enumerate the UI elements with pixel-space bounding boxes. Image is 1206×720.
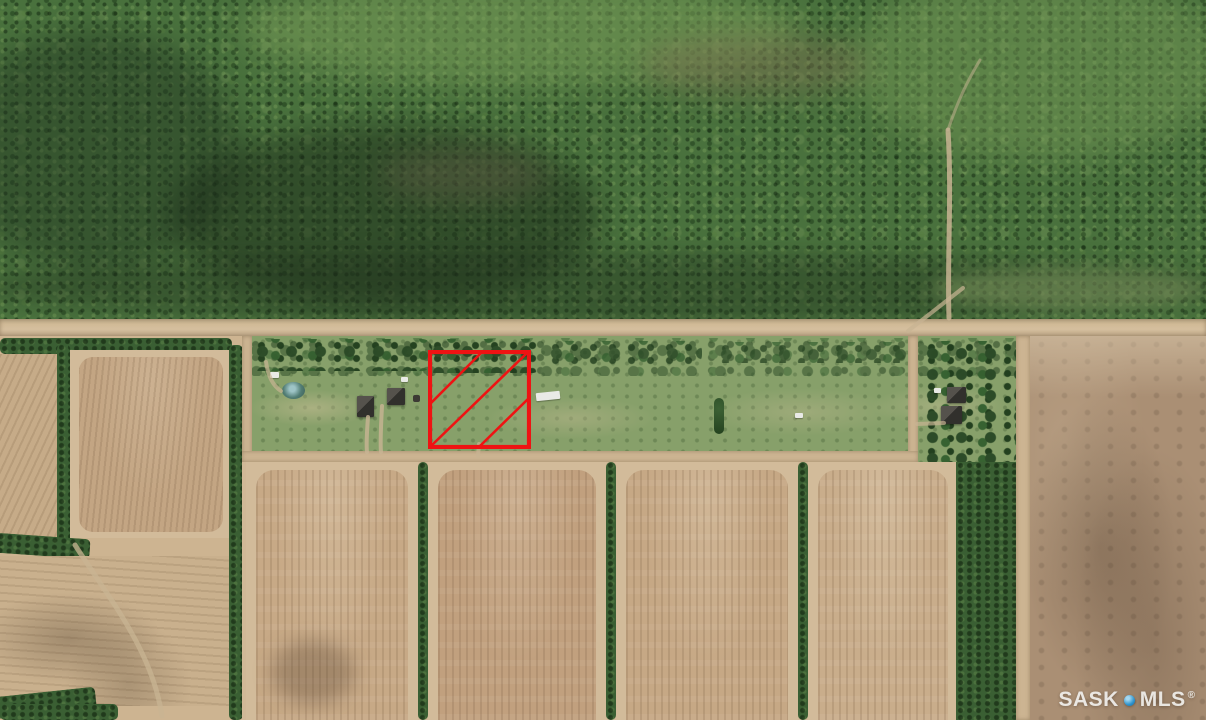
- acreage-lot-strip: [242, 336, 1018, 462]
- hedgerow: [57, 344, 70, 550]
- house: [941, 406, 962, 424]
- hedgerow: [0, 704, 118, 720]
- tilled-field: [808, 462, 958, 720]
- pond: [282, 382, 305, 399]
- forest-brown-patch: [380, 150, 550, 200]
- side-road: [1016, 336, 1030, 720]
- tree-cluster: [542, 341, 702, 365]
- shed: [401, 377, 408, 382]
- house: [387, 388, 405, 405]
- tilled-soil: [256, 470, 408, 720]
- outbuilding: [413, 395, 420, 402]
- forest-area: [0, 0, 1206, 336]
- parcel-outline-svg: [428, 350, 531, 449]
- house: [947, 387, 966, 403]
- tilled-field: [428, 462, 606, 720]
- tree: [714, 398, 724, 434]
- access-road: [908, 336, 918, 456]
- tree-cluster: [712, 342, 912, 363]
- tilled-field: [70, 350, 232, 538]
- hatch-line: [480, 399, 528, 446]
- tilled-soil: [79, 357, 223, 532]
- house: [357, 396, 374, 417]
- watermark-sask-text: SASK: [1058, 688, 1118, 712]
- aerial-photo-scene: SASK MLS ®: [0, 0, 1206, 720]
- forest-clearing-patch: [930, 268, 1206, 310]
- shed: [795, 413, 803, 418]
- east-field: [1030, 336, 1206, 720]
- tilled-field: [0, 354, 60, 544]
- service-road: [242, 451, 918, 462]
- watermark-mls-text: MLS: [1140, 688, 1186, 712]
- hedgerow: [418, 462, 428, 720]
- tree-cluster: [248, 339, 432, 371]
- tilled-field: [616, 462, 798, 720]
- tilled-soil: [626, 470, 788, 720]
- trailer: [536, 391, 561, 401]
- hatch-line: [430, 352, 482, 404]
- forest-light-patch: [850, 0, 1206, 160]
- forest-brown-patch: [640, 35, 870, 95]
- main-gravel-road: [0, 319, 1206, 336]
- hedgerow: [798, 462, 808, 720]
- watermark-dot-icon: [1124, 695, 1135, 706]
- west-fields-area: [0, 336, 242, 720]
- saskmls-watermark: SASK MLS ®: [1058, 688, 1195, 712]
- tilled-field: [0, 556, 233, 706]
- parcel-overlay: [428, 350, 531, 449]
- tree-cluster: [918, 341, 1018, 462]
- tree-shelterbelt: [956, 462, 1018, 720]
- tilled-field: [246, 462, 418, 720]
- access-road: [242, 336, 252, 456]
- shed: [270, 372, 279, 378]
- tilled-soil: [818, 470, 948, 720]
- shed: [934, 388, 941, 393]
- hatch-line: [431, 353, 527, 446]
- tilled-soil: [438, 470, 596, 720]
- hedgerow: [229, 345, 243, 720]
- south-fields-area: [242, 462, 958, 720]
- hedgerow: [606, 462, 616, 720]
- watermark-registered-symbol: ®: [1188, 688, 1195, 701]
